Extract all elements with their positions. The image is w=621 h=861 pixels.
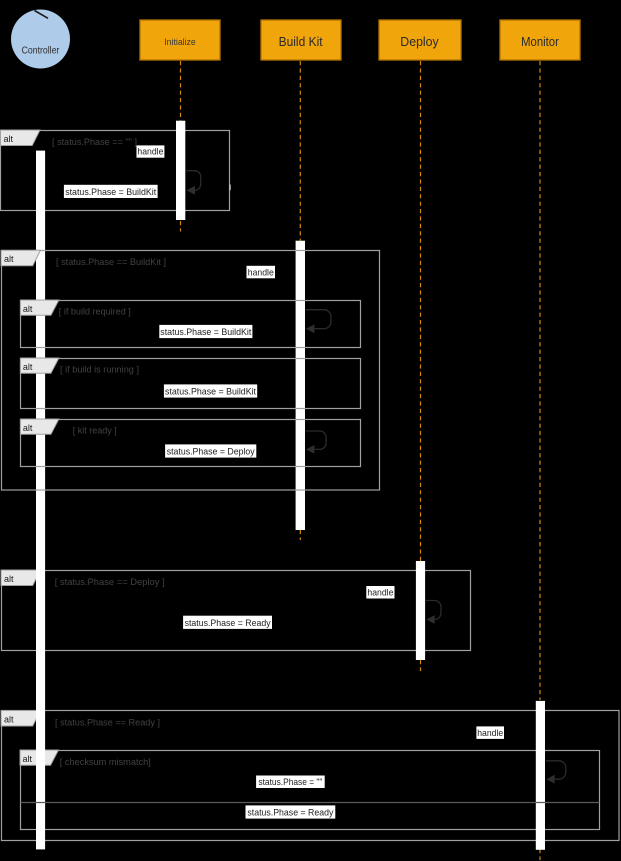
svg-text:handle: handle [137,147,163,157]
svg-text:status.Phase = Ready: status.Phase = Ready [185,618,271,628]
svg-text:status.Phase = BuildKit: status.Phase = BuildKit [65,187,156,197]
svg-text:alt: alt [23,423,33,433]
svg-text:alt: alt [23,304,33,314]
svg-text:status.Phase = Deploy: status.Phase = Deploy [167,447,255,457]
svg-text:Deploy: Deploy [400,34,439,49]
svg-text:[ if build required ]: [ if build required ] [59,307,131,318]
svg-text:status.Phase = "": status.Phase = "" [258,777,322,787]
svg-text:[ status.Phase == Ready ]: [ status.Phase == Ready ] [55,718,160,729]
svg-text:alt: alt [4,134,14,144]
svg-text:Controller: Controller [22,45,60,57]
svg-text:handle: handle [248,267,274,277]
svg-text:handle: handle [477,728,503,738]
svg-text:[ status.Phase == "" ]: [ status.Phase == "" ] [52,137,137,148]
svg-text:alt: alt [23,754,33,764]
svg-text:[ status.Phase == Deploy ]: [ status.Phase == Deploy ] [55,577,165,588]
svg-text:Monitor: Monitor [521,34,559,49]
svg-text:alt: alt [4,254,14,264]
svg-text:[ status.Phase == BuildKit ]: [ status.Phase == BuildKit ] [56,257,166,268]
svg-text:handle: handle [367,588,393,598]
svg-text:alt: alt [4,714,14,724]
svg-text:alt: alt [4,574,14,584]
svg-text:status.Phase = Ready: status.Phase = Ready [247,808,333,818]
svg-text:status.Phase = BuildKit: status.Phase = BuildKit [165,387,256,397]
svg-text:alt: alt [23,362,33,372]
svg-text:[ if build is running ]: [ if build is running ] [60,365,139,376]
svg-text:Build Kit: Build Kit [279,34,323,49]
svg-text:status.Phase = BuildKit: status.Phase = BuildKit [160,327,251,337]
svg-text:Initialize: Initialize [164,37,196,47]
svg-text:[ checksum mismatch]: [ checksum mismatch] [60,757,151,768]
svg-text:[ kit ready ]: [ kit ready ] [73,426,117,437]
